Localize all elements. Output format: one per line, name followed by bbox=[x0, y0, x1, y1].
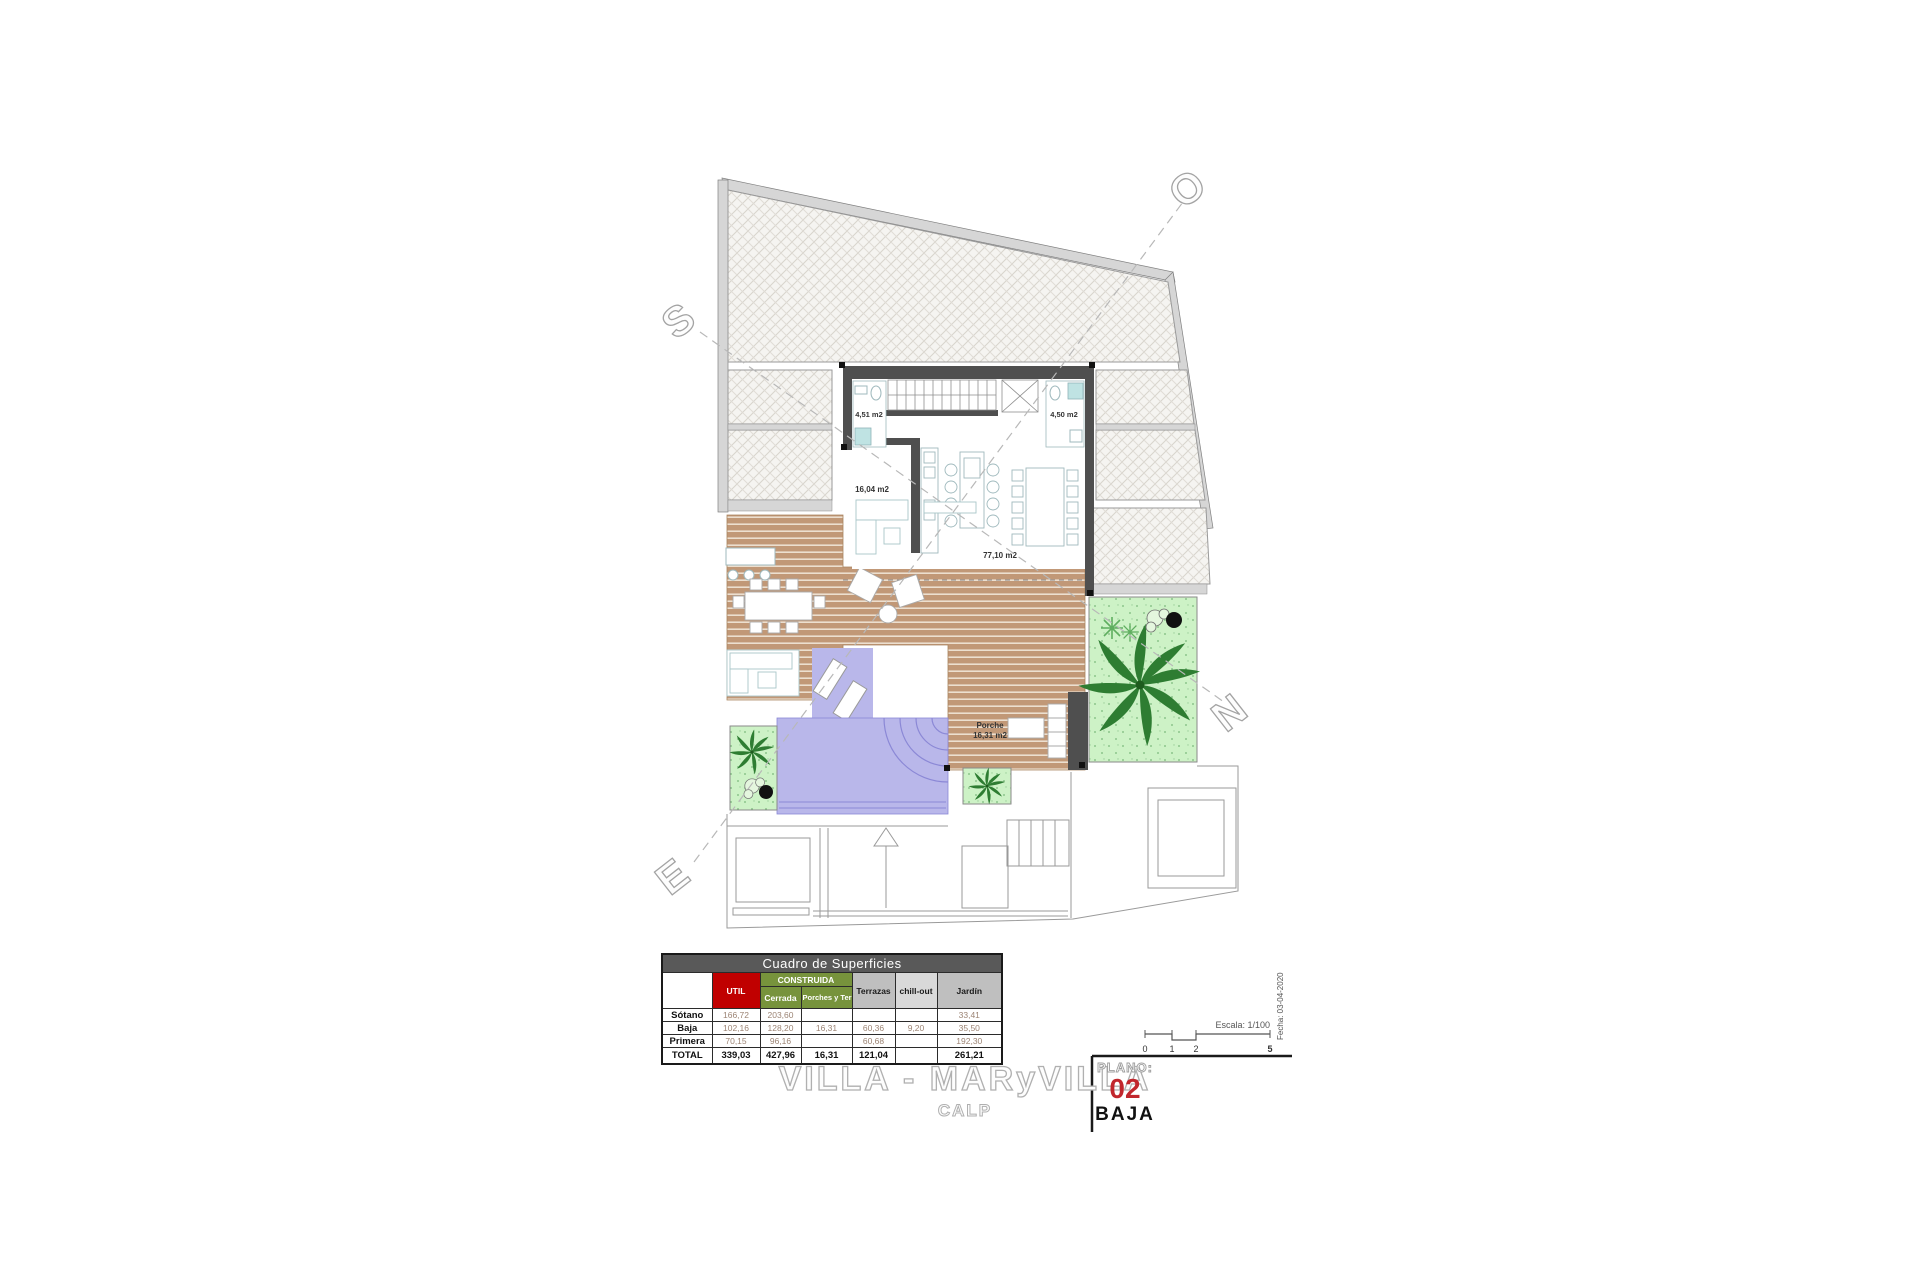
staircase bbox=[888, 380, 996, 410]
plano-number: 02 bbox=[1109, 1073, 1140, 1104]
garden-left bbox=[729, 726, 777, 810]
cell-value: 192,30 bbox=[937, 1035, 1002, 1048]
porch-area-label: 16,31 m2 bbox=[973, 731, 1007, 740]
bathroom-left: 4,51 m2 bbox=[853, 381, 886, 447]
table-row-baja: Baja 102,16 128,20 16,31 60,36 9,20 35,5… bbox=[662, 1022, 1002, 1035]
table-row-sotano: Sótano 166,72 203,60 33,41 bbox=[662, 1009, 1002, 1022]
cell-value: 35,50 bbox=[937, 1022, 1002, 1035]
scale-tick-5: 5 bbox=[1267, 1044, 1272, 1054]
terrain-right-a bbox=[1096, 370, 1194, 424]
cell-value: 166,72 bbox=[712, 1009, 760, 1022]
plano-name: BAJA bbox=[1095, 1104, 1155, 1125]
table-corner-cell bbox=[662, 973, 712, 1009]
cell-value: 102,16 bbox=[712, 1022, 760, 1035]
header-chillout: chill-out bbox=[895, 973, 937, 1009]
cell-value: 96,16 bbox=[760, 1035, 801, 1048]
bath-right-area-label: 4,50 m2 bbox=[1050, 410, 1078, 419]
row-label: Baja bbox=[662, 1022, 712, 1035]
surfaces-table: Cuadro de Superficies UTIL CONSTRUIDA Te… bbox=[661, 953, 1003, 1065]
scale-bar: 0 1 2 5 Escala: 1/100 Fecha: 03-04-2020 bbox=[1142, 972, 1285, 1054]
entrance-arrow bbox=[874, 828, 898, 908]
date-label: Fecha: 03-04-2020 bbox=[1276, 972, 1285, 1040]
header-porches: Porches y Terrazas bbox=[801, 987, 852, 1009]
terrain-top bbox=[728, 190, 1180, 362]
bathroom-right: 4,50 m2 bbox=[1046, 381, 1084, 447]
header-jardin: Jardín bbox=[937, 973, 1002, 1009]
cell-value: 60,68 bbox=[852, 1035, 895, 1048]
terrain-right-c bbox=[1089, 508, 1210, 584]
floor-plan-drawing: Porche 16,31 m2 bbox=[0, 0, 1920, 1280]
elevator bbox=[1002, 380, 1038, 412]
cell-value bbox=[801, 1035, 852, 1048]
row-label: TOTAL bbox=[662, 1048, 712, 1065]
shower bbox=[855, 428, 871, 445]
scale-tick-1: 1 bbox=[1169, 1044, 1174, 1054]
compass-north: N bbox=[1203, 685, 1256, 741]
terrain-left-a bbox=[728, 370, 832, 424]
shower bbox=[1068, 383, 1083, 399]
cell-value: 128,20 bbox=[760, 1022, 801, 1035]
dining-table bbox=[1012, 468, 1078, 546]
cell-value: 70,15 bbox=[712, 1035, 760, 1048]
header-cerrada: Cerrada bbox=[760, 987, 801, 1009]
cell-value: 16,31 bbox=[801, 1048, 852, 1065]
header-terrazas: Terrazas bbox=[852, 973, 895, 1009]
row-label: Sótano bbox=[662, 1009, 712, 1022]
table-title: Cuadro de Superficies bbox=[662, 954, 1002, 973]
header-util: UTIL bbox=[712, 973, 760, 1009]
title-block: VILLA - MARyVILLA CALP PLANO: 02 BAJA bbox=[779, 1056, 1292, 1132]
garden-center bbox=[963, 767, 1011, 804]
scale-label: Escala: 1/100 bbox=[1215, 1020, 1270, 1030]
cell-value: 427,96 bbox=[760, 1048, 801, 1065]
terrain-left-b bbox=[728, 430, 832, 500]
plan-sheet: Porche 16,31 m2 bbox=[0, 0, 1920, 1280]
project-location: CALP bbox=[938, 1101, 992, 1120]
row-label: Primera bbox=[662, 1035, 712, 1048]
cell-value: 9,20 bbox=[895, 1022, 937, 1035]
cell-value bbox=[895, 1035, 937, 1048]
compass-south: S bbox=[653, 293, 704, 347]
cell-value: 60,36 bbox=[852, 1022, 895, 1035]
table-row-total: TOTAL 339,03 427,96 16,31 121,04 261,21 bbox=[662, 1048, 1002, 1065]
header-construida: CONSTRUIDA bbox=[760, 973, 852, 987]
cell-value: 16,31 bbox=[801, 1022, 852, 1035]
scale-tick-0: 0 bbox=[1142, 1044, 1147, 1054]
cell-value bbox=[801, 1009, 852, 1022]
cell-value: 261,21 bbox=[937, 1048, 1002, 1065]
parcel-left-wall bbox=[718, 180, 728, 512]
compass-east: E bbox=[647, 849, 698, 903]
terrain-right-b bbox=[1096, 430, 1205, 500]
cell-value: 121,04 bbox=[852, 1048, 895, 1065]
cell-value bbox=[895, 1009, 937, 1022]
swimming-pool bbox=[777, 718, 948, 814]
garden-right bbox=[1078, 597, 1200, 762]
deck-sofa bbox=[727, 650, 799, 696]
bath-left-area-label: 4,51 m2 bbox=[855, 410, 883, 419]
scale-tick-2: 2 bbox=[1193, 1044, 1198, 1054]
compass-west: O bbox=[1160, 160, 1215, 217]
cell-value: 339,03 bbox=[712, 1048, 760, 1065]
cell-value: 203,60 bbox=[760, 1009, 801, 1022]
cell-value: 33,41 bbox=[937, 1009, 1002, 1022]
kitchen-area-label: 16,04 m2 bbox=[855, 485, 889, 494]
cell-value bbox=[895, 1048, 937, 1065]
exterior-stairs bbox=[1007, 820, 1069, 866]
project-title: VILLA - MARyVILLA bbox=[779, 1060, 1152, 1098]
cell-value bbox=[852, 1009, 895, 1022]
porch-label: Porche bbox=[976, 721, 1004, 730]
table-row-primera: Primera 70,15 96,16 60,68 192,30 bbox=[662, 1035, 1002, 1048]
